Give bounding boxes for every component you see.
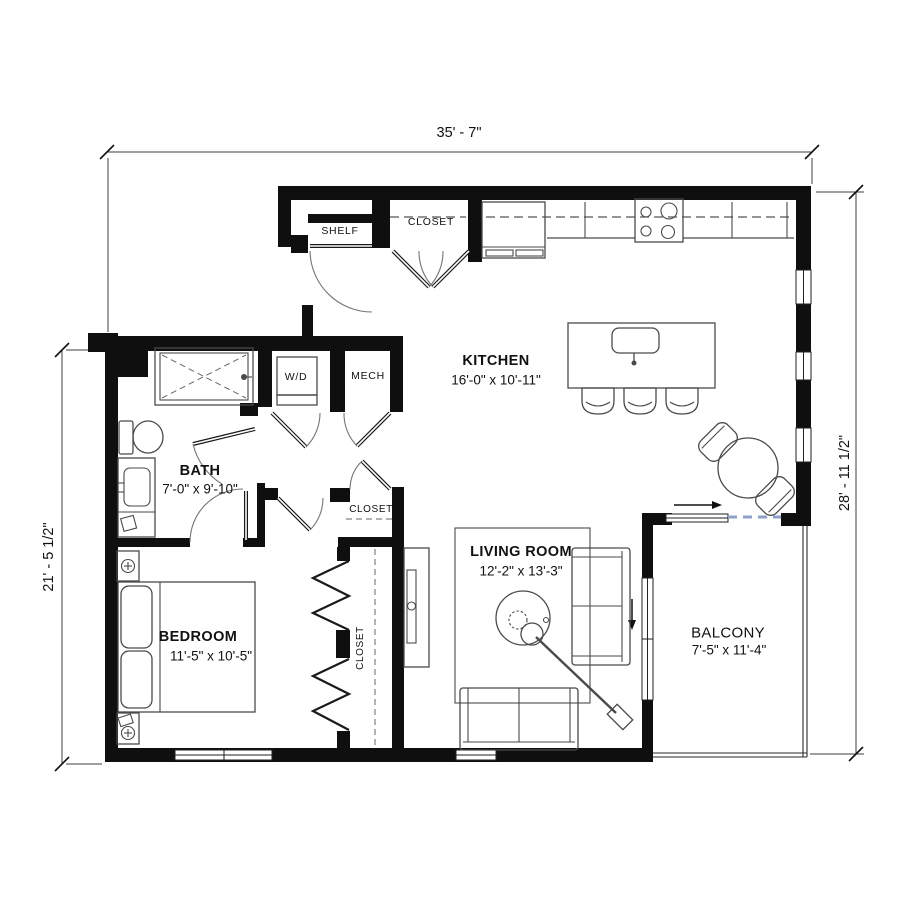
dimension-left [55,343,102,771]
bath-bedroom-door [190,489,246,542]
window-bedroom [175,750,272,760]
bedroom-label: BEDROOM [159,630,238,645]
entry-door [310,246,372,312]
bath-label: BATH [180,464,221,479]
washer-dryer-door [272,413,320,447]
bed [118,582,255,712]
kitchen-island [568,323,715,388]
bedroom-door [278,498,323,530]
window-right-1 [796,270,811,304]
kitchen-label: KITCHEN [462,354,529,369]
sofa [572,548,630,665]
floor-lamp [536,637,633,730]
bedroom-size-label: 11'-5" x 10'-5" [170,649,252,663]
dining-table [718,438,778,498]
washer-dryer-label: W/D [285,372,308,383]
shower [155,348,253,405]
coffee-table [496,591,550,645]
sliding-door [666,514,781,522]
balcony-size-label: 7'-5" x 11'-4" [692,643,767,657]
window-right-3 [796,428,811,462]
nightstand-bottom [117,713,139,744]
window-direction-arrow [628,599,636,630]
mech-label: MECH [351,371,385,382]
entry-closet-label: CLOSET [408,217,454,228]
window-right-2 [796,352,811,380]
window-living-balcony [642,578,653,700]
nightstand-top [117,551,139,581]
dimension-top-label: 35' - 7" [437,126,482,141]
window-living-south [456,750,496,760]
dining-chairs [695,419,797,518]
balcony-label: BALCONY [691,626,765,641]
living-room-label: LIVING ROOM [470,545,572,560]
toilet [119,421,163,454]
tv-console [404,548,429,667]
slider-direction-arrow [674,501,722,509]
vanity-sink [118,458,155,537]
mech-door [344,413,390,446]
bath-size-label: 7'-0" x 9'-10" [162,482,238,496]
living-room-size-label: 12'-2" x 13'-3" [479,564,562,578]
floor-plan: 35' - 7" 28' - 11 1/2" 21' - 5 1/2" KITC… [0,0,900,900]
loveseat [460,688,578,750]
kitchen-counter [486,202,794,238]
stove [635,199,683,242]
dimension-right-label: 28' - 11 1/2" [838,435,853,511]
shelf-label: SHELF [321,226,358,237]
island-stools [582,388,698,414]
kitchen-size-label: 16'-0" x 10'-11" [451,373,541,387]
refrigerator [482,202,545,258]
hall-closet-label: CLOSET [349,505,393,515]
bedroom-closet-label: CLOSET [356,626,366,670]
dimension-left-label: 21' - 5 1/2" [42,522,57,591]
